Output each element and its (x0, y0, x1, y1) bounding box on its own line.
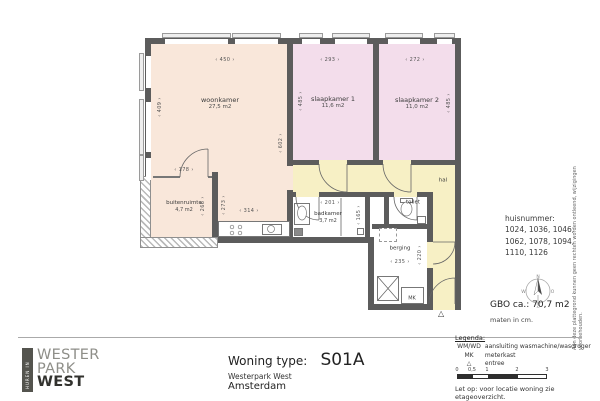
door-slaapkamer-1 (319, 164, 347, 192)
logo-vertical-text: HUREN IN (25, 361, 30, 389)
legend-rows: WM/WD aansluiting wasmachine/wasdroger M… (455, 343, 591, 369)
dim-sk1-width: 293 (320, 57, 340, 63)
logo-line3: WEST (37, 376, 100, 390)
legend-value-mk: meterkast (485, 352, 516, 359)
scale-tick: 0,5 (468, 367, 476, 373)
compass-needle-light (534, 278, 538, 295)
dim-kitchen-width: 314 (239, 208, 259, 214)
units-note: maten in cm. (490, 316, 533, 324)
woning-type-value: S01A (320, 350, 364, 370)
dim-strip-depth: 273 (221, 195, 227, 215)
scale-tick: 2 (515, 367, 518, 373)
dim-woonkamer-depth-right: 602 (278, 133, 284, 153)
door-arcs (0, 0, 600, 400)
label-slaapkamer-1: slaapkamer 1 11,6 m2 (311, 95, 355, 111)
dim-berging-depth: 220 (417, 245, 423, 265)
legend-row-mk: MK meterkast (455, 352, 591, 361)
gbo-value: GBO ca.: 70,7 m2 (490, 300, 570, 310)
label-hal: hal (439, 177, 447, 184)
floorplan-sheet: { "titleblock": { "label": "Woning type:… (0, 0, 600, 400)
legend-key-wmwd: WM/WD (455, 343, 483, 352)
stove-burner (238, 225, 242, 229)
compass-n: N (536, 274, 539, 280)
dim-badkamer-depth: 165 (356, 205, 362, 225)
huisnummer-line: 1110, 1126 (505, 247, 574, 258)
label-buitenruimte: buitenruimte 4,7 m2 (166, 200, 202, 214)
dim-sk2-width: 272 (405, 57, 425, 63)
dim-badkamer-width: 201 (320, 200, 340, 206)
huisnummer-label: huisnummer: (505, 213, 574, 224)
washer-cross (378, 277, 398, 300)
legend-heading: Legenda: (455, 334, 485, 342)
stove-burner (238, 231, 242, 235)
city-name: Amsterdam (228, 381, 286, 392)
dim-berging-width: 235 (390, 259, 410, 265)
scale-tick: 3 (545, 367, 548, 373)
huisnummer-line: 1062, 1078, 1094, (505, 236, 574, 247)
huisnummer-block: huisnummer: 1024, 1036, 1046, 1062, 1078… (505, 213, 574, 258)
washbasin-bowl (298, 206, 307, 220)
dim-woonkamer-width: 450 (215, 57, 235, 63)
scale-segment (488, 375, 518, 378)
legend-value-wmwd: aansluiting wasmachine/wasdroger (485, 343, 591, 350)
dim-sk2-depth: 485 (446, 93, 452, 113)
scale-tick: 0 (455, 367, 458, 373)
stove-burner (230, 225, 234, 229)
stove-burner (230, 231, 234, 235)
scale-bar (457, 374, 547, 379)
entree-marker: △ (438, 309, 444, 318)
compass-needle-dark (538, 278, 542, 295)
label-berging: berging (389, 245, 410, 252)
label-toilet: toilet (406, 199, 420, 206)
dim-buitenruimte-depth: 266 (200, 196, 206, 216)
compass-w: W (521, 289, 526, 295)
woning-type-row: Woning type: S01A (228, 350, 365, 370)
titleblock-divider (18, 337, 582, 338)
scale-segment (458, 375, 473, 378)
label-badkamer: badkamer 3,7 m2 (314, 211, 342, 225)
compass-o: O (551, 289, 555, 295)
dim-woonkamer-depth-left: 409 (157, 97, 163, 117)
door-berging (433, 242, 455, 264)
label-woonkamer: woonkamer 27,5 m2 (201, 96, 239, 112)
kitchen-sink-bowl (268, 226, 275, 233)
project-name: Westerpark West (228, 372, 292, 381)
logo-bar: HUREN IN (22, 348, 33, 392)
side-disclaimer: Aan deze plattegrond kunnen geen rechten… (572, 140, 584, 350)
door-entree (429, 278, 455, 304)
scale-tick: 1 (485, 367, 488, 373)
dim-buitenruimte-width: 178 (174, 167, 194, 173)
woning-type-label: Woning type: (228, 354, 307, 368)
logo-wordmark: WESTER PARK WEST (37, 349, 100, 390)
bottom-note: Let op: voor locatie woning zie etageove… (455, 385, 600, 401)
label-mk: MK (408, 285, 416, 306)
label-slaapkamer-2: slaapkamer 2 11,0 m2 (395, 96, 439, 112)
dim-sk1-depth: 485 (298, 91, 304, 111)
door-slaapkamer-2 (383, 164, 411, 192)
legend-row-wmwd: WM/WD aansluiting wasmachine/wasdroger (455, 343, 591, 352)
legend-key-mk: MK (455, 352, 483, 361)
huisnummer-line: 1024, 1036, 1046, (505, 224, 574, 235)
